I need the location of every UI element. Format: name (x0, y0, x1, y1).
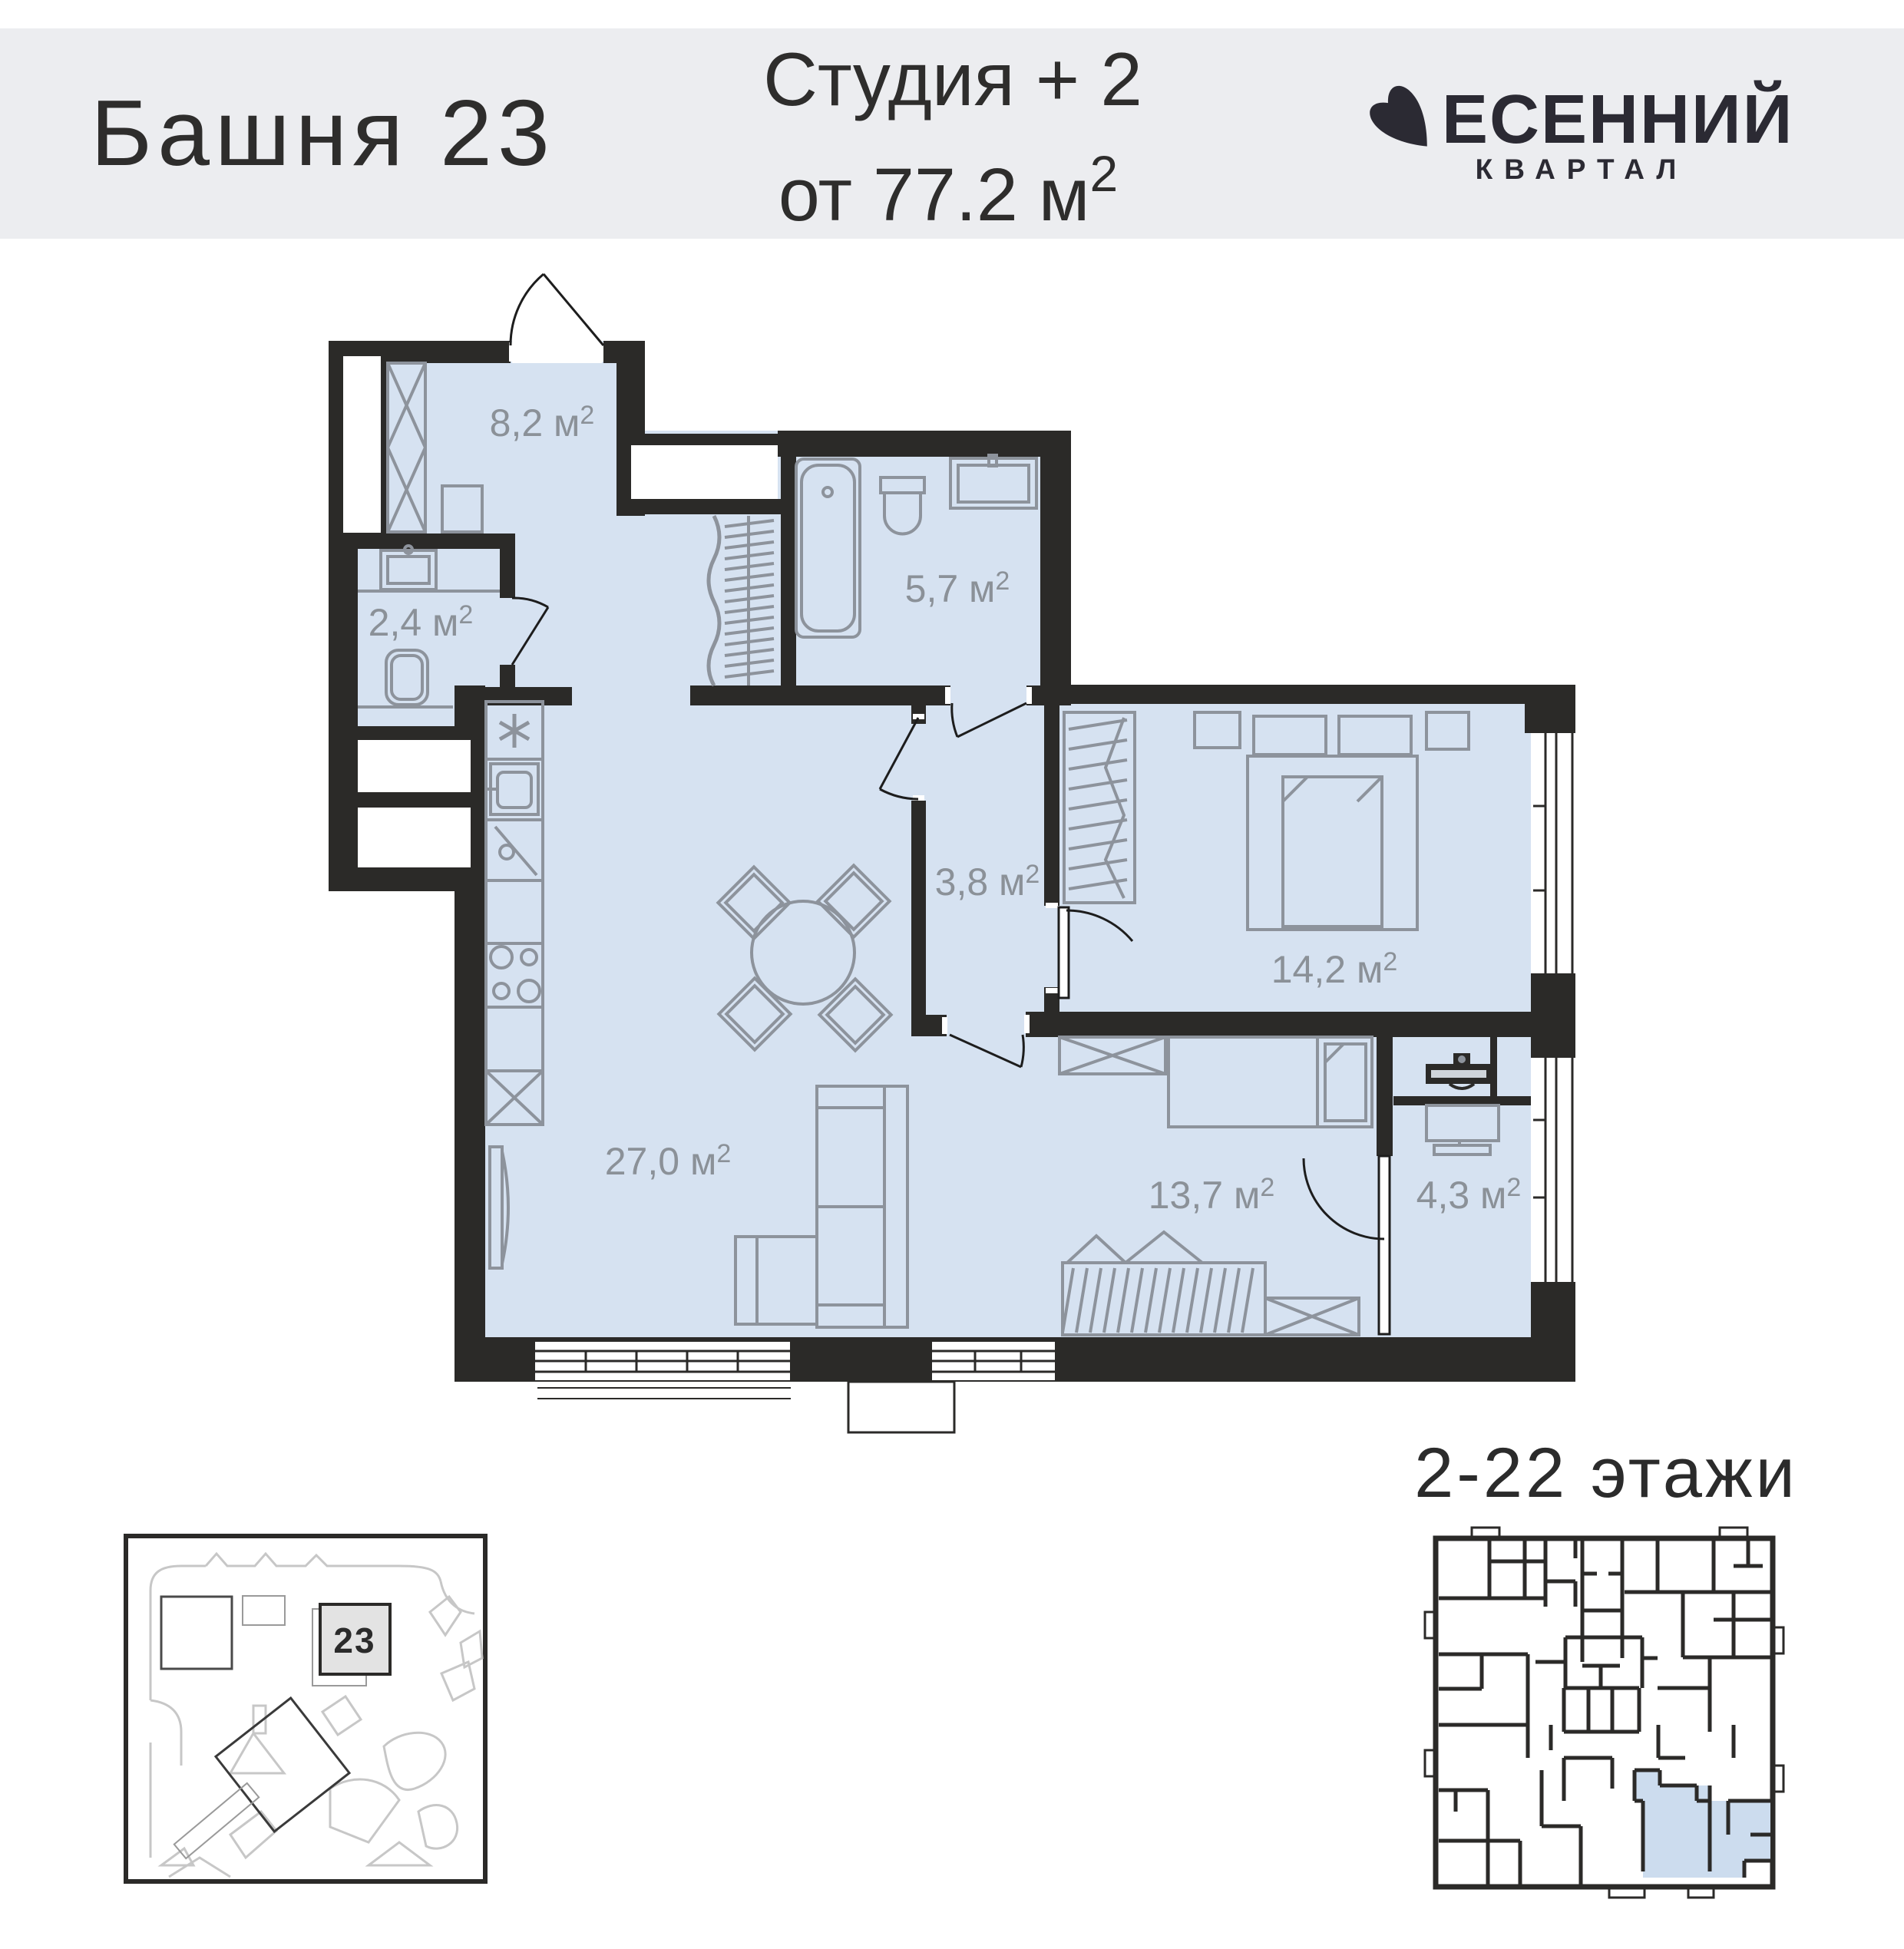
svg-text:Студия + 2: Студия + 2 (763, 37, 1142, 121)
svg-text:2-22 этажи: 2-22 этажи (1414, 1434, 1798, 1512)
svg-text:3,8 м2: 3,8 м2 (935, 860, 1040, 903)
svg-text:14,2 м2: 14,2 м2 (1271, 947, 1398, 991)
svg-text:Башня 23: Башня 23 (91, 81, 555, 185)
svg-text:4,3 м2: 4,3 м2 (1416, 1173, 1522, 1217)
svg-text:8,2 м2: 8,2 м2 (490, 401, 595, 444)
svg-text:2,4 м2: 2,4 м2 (369, 600, 474, 644)
svg-text:5,7 м2: 5,7 м2 (905, 567, 1010, 610)
svg-text:13,7 м2: 13,7 м2 (1149, 1173, 1275, 1217)
svg-text:КВАРТАЛ: КВАРТАЛ (1476, 154, 1688, 185)
svg-text:27,0 м2: 27,0 м2 (605, 1139, 732, 1183)
svg-text:ЕСЕННИЙ: ЕСЕННИЙ (1442, 79, 1793, 158)
svg-text:23: 23 (333, 1620, 375, 1660)
svg-text:от 77.2 м2: от 77.2 м2 (778, 145, 1118, 236)
